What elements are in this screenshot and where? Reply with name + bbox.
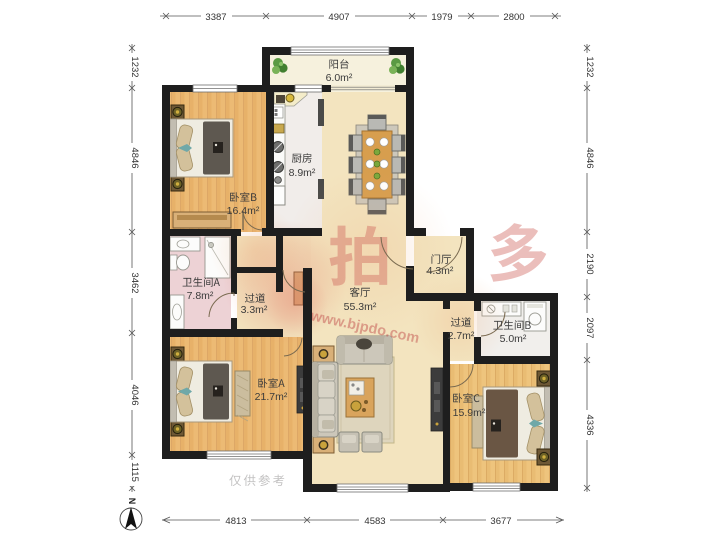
svg-text:4336: 4336 [584,414,595,435]
svg-text:2190: 2190 [584,253,595,274]
svg-text:1979: 1979 [431,12,452,23]
svg-text:3387: 3387 [205,12,226,23]
svg-text:3677: 3677 [490,516,511,527]
svg-text:2097: 2097 [584,317,595,338]
svg-text:1115: 1115 [129,462,140,482]
svg-text:4907: 4907 [328,12,349,23]
svg-text:4046: 4046 [129,384,140,405]
svg-text:5.0m²: 5.0m² [500,333,527,345]
svg-text:7.8m²: 7.8m² [187,290,214,302]
svg-text:4846: 4846 [584,147,595,168]
svg-text:4846: 4846 [129,147,140,168]
svg-text:16.4m²: 16.4m² [227,205,260,217]
svg-text:4.3m²: 4.3m² [427,265,454,277]
svg-text:21.7m²: 21.7m² [255,391,288,403]
svg-text:2800: 2800 [503,12,524,23]
svg-text:1232: 1232 [129,56,140,77]
svg-text:8.9m²: 8.9m² [289,167,316,179]
svg-text:2.7m²: 2.7m² [448,330,475,342]
svg-text:4813: 4813 [225,516,246,527]
svg-text:55.3m²: 55.3m² [344,301,377,313]
svg-text:15.9m²: 15.9m² [453,407,486,419]
svg-text:N: N [127,498,137,505]
svg-text:1232: 1232 [584,56,595,77]
svg-text:4583: 4583 [364,516,385,527]
svg-text:3.3m²: 3.3m² [241,304,268,316]
svg-text:3462: 3462 [129,272,140,293]
svg-text:6.0m²: 6.0m² [326,72,353,84]
